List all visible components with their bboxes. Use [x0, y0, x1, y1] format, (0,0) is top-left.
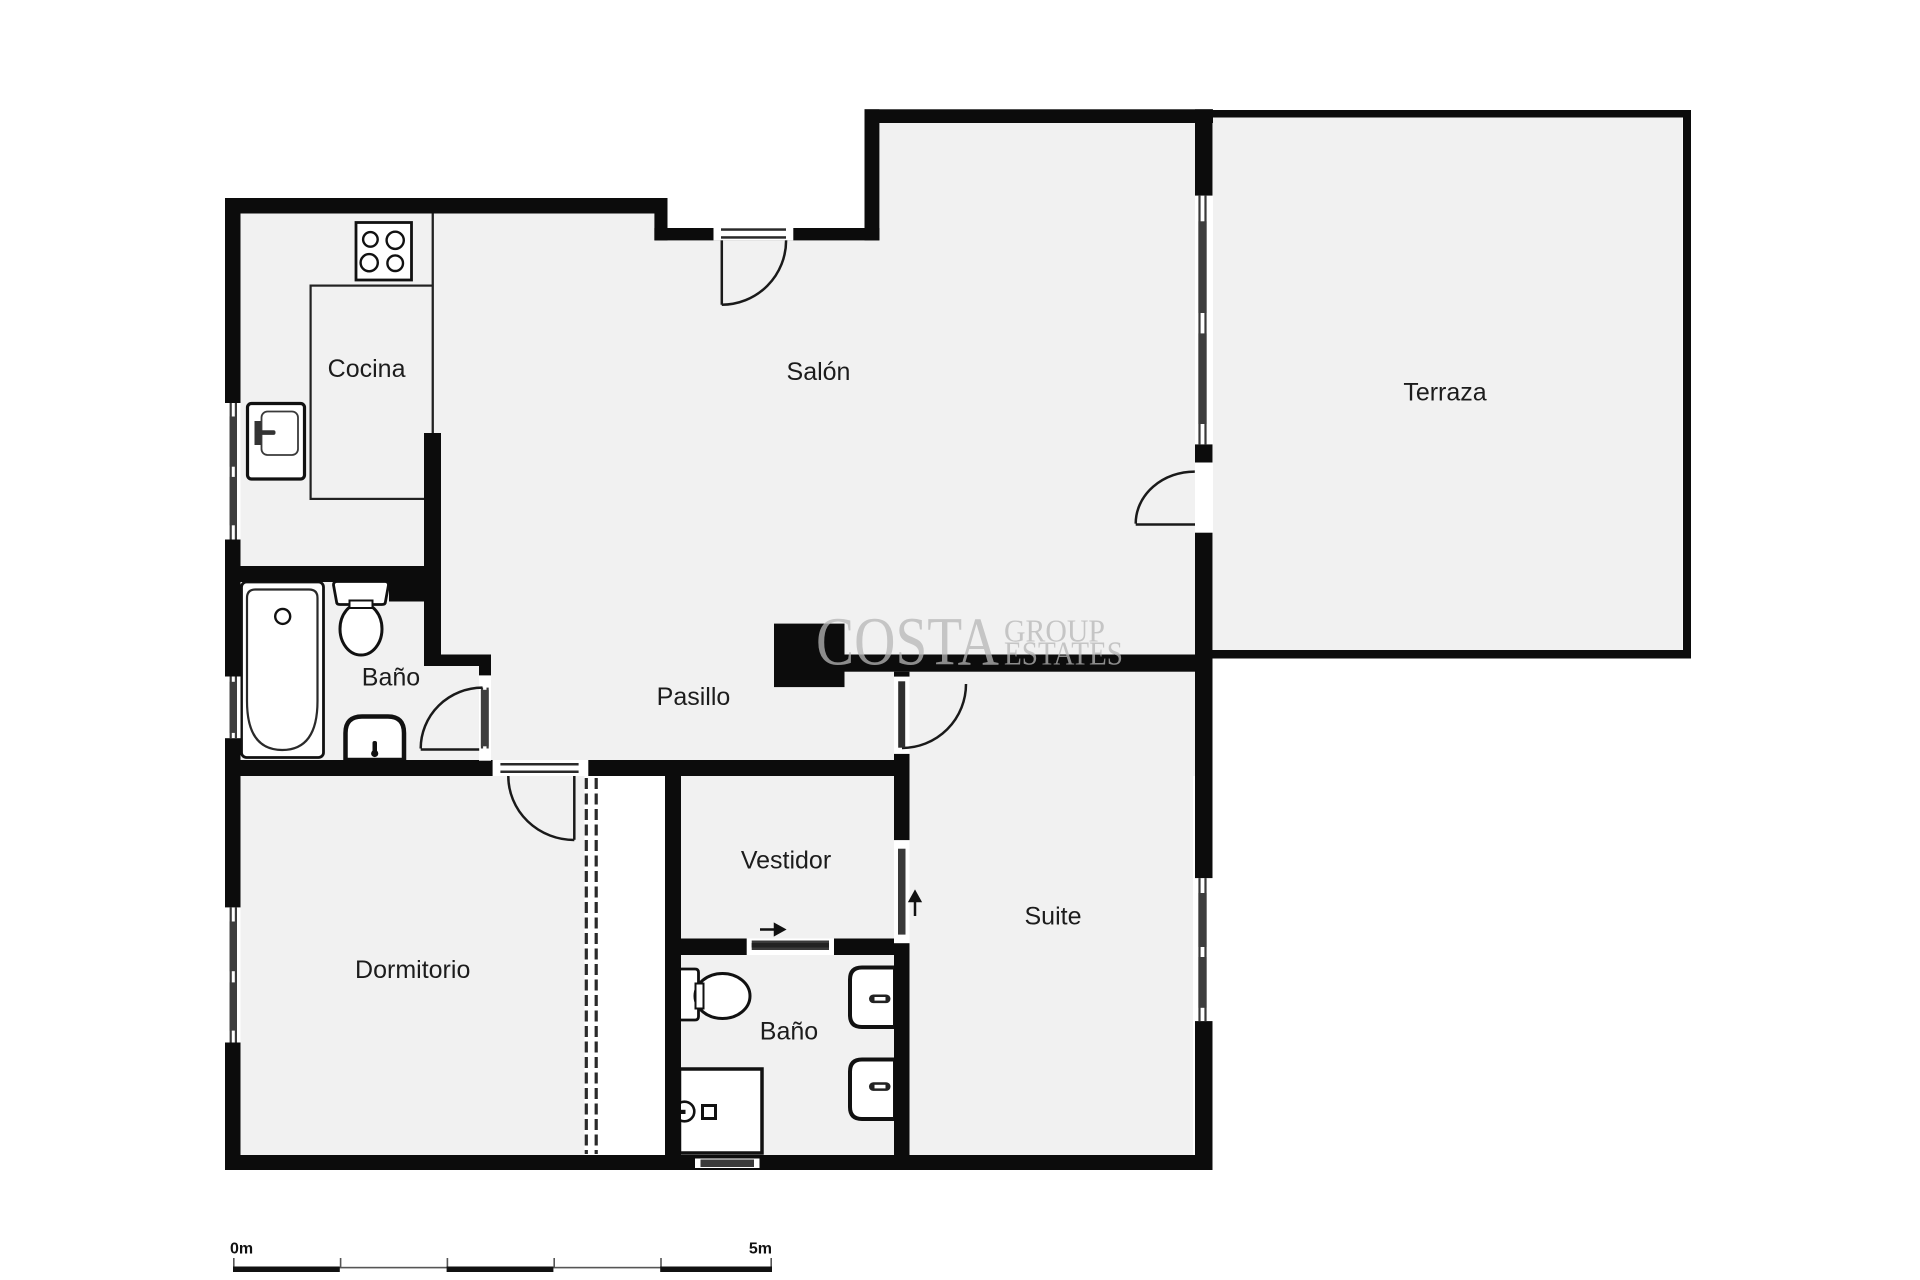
svg-text:Salón: Salón [787, 358, 851, 386]
svg-text:Pasillo: Pasillo [657, 683, 731, 711]
svg-text:Cocina: Cocina [328, 355, 406, 383]
svg-text:COSTA: COSTA [816, 603, 999, 679]
svg-text:Baño: Baño [760, 1018, 818, 1046]
svg-text:Terraza: Terraza [1403, 379, 1486, 407]
svg-text:Baño: Baño [362, 664, 420, 692]
svg-text:Vestidor: Vestidor [741, 847, 831, 875]
svg-text:Suite: Suite [1025, 903, 1082, 931]
svg-text:Dormitorio: Dormitorio [355, 956, 470, 984]
svg-text:5m: 5m [749, 1241, 772, 1258]
svg-text:ESTATES: ESTATES [1004, 635, 1123, 672]
svg-text:0m: 0m [230, 1241, 253, 1258]
